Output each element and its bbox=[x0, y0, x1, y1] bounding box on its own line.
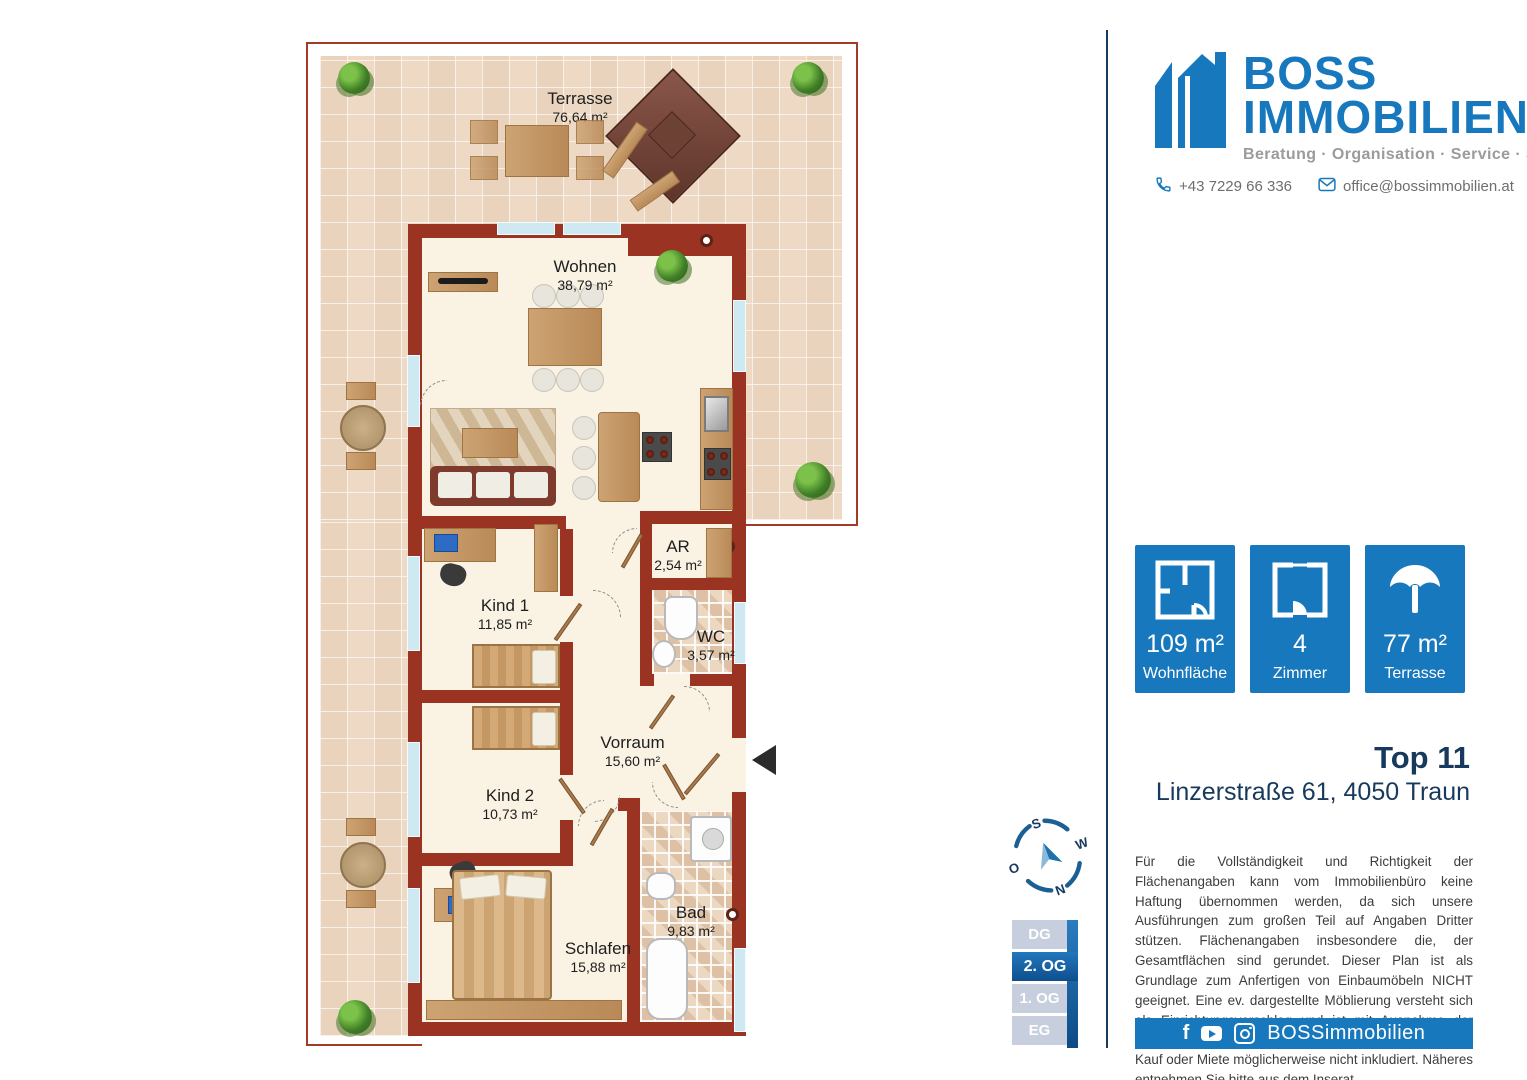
wall bbox=[422, 690, 573, 703]
wall bbox=[640, 511, 746, 524]
instagram-icon[interactable] bbox=[1234, 1023, 1255, 1044]
wall-socket bbox=[726, 908, 739, 921]
floor-item-eg[interactable]: EG bbox=[1012, 1016, 1067, 1045]
wc-sink bbox=[652, 640, 676, 668]
wall bbox=[690, 674, 746, 686]
floorplan-icon bbox=[1154, 559, 1216, 621]
kitchen-sink bbox=[704, 396, 729, 432]
sofa-cushion bbox=[514, 472, 548, 498]
shelf bbox=[706, 528, 732, 578]
compass-s: S bbox=[1030, 815, 1044, 832]
youtube-icon[interactable] bbox=[1201, 1026, 1222, 1041]
dining-chair bbox=[556, 368, 580, 392]
window bbox=[497, 222, 555, 235]
wicker-chair bbox=[346, 890, 376, 908]
email-icon bbox=[1318, 177, 1336, 196]
pillow bbox=[505, 874, 547, 899]
plant-icon bbox=[656, 250, 688, 282]
cooktop bbox=[704, 448, 731, 480]
stat-zimmer: 4 Zimmer bbox=[1250, 545, 1350, 693]
stat-terrasse: 77 m² Terrasse bbox=[1365, 545, 1465, 693]
brand-logo-icon bbox=[1155, 52, 1231, 153]
room-door-icon bbox=[1269, 559, 1331, 621]
parasol-icon bbox=[1384, 559, 1446, 621]
french-door bbox=[407, 888, 420, 983]
wicker-table bbox=[340, 405, 386, 451]
social-footer[interactable]: f BOSSimmobilien bbox=[1135, 1018, 1473, 1049]
stat-wohnflaeche: 109 m² Wohnfläche bbox=[1135, 545, 1235, 693]
bad-sink bbox=[646, 872, 676, 900]
floor-selector-strip bbox=[1067, 920, 1078, 1048]
brand-name-line2: IMMOBILIEN bbox=[1243, 96, 1527, 140]
wicker-chair bbox=[346, 818, 376, 836]
bathtub bbox=[646, 938, 688, 1020]
wall bbox=[627, 798, 640, 1022]
flyer-page: Terrasse 76,64 m² bbox=[0, 0, 1527, 1080]
plant-icon bbox=[338, 1000, 372, 1034]
wall bbox=[560, 529, 573, 596]
terrace-table bbox=[505, 125, 569, 177]
entrance-opening bbox=[732, 738, 746, 792]
bar-stool bbox=[572, 416, 596, 440]
pillow bbox=[459, 874, 501, 900]
social-handle: BOSSimmobilien bbox=[1267, 1022, 1425, 1045]
sofa-cushion bbox=[476, 472, 510, 498]
wicker-chair bbox=[346, 452, 376, 470]
sofa-cushion bbox=[438, 472, 472, 498]
entrance-arrow-icon bbox=[752, 745, 776, 775]
floor-item-1og[interactable]: 1. OG bbox=[1012, 984, 1067, 1013]
shower-drain bbox=[702, 828, 724, 850]
dining-chair bbox=[556, 284, 580, 308]
panel-divider bbox=[1106, 30, 1108, 1048]
wall bbox=[640, 674, 654, 686]
wall bbox=[422, 853, 573, 866]
stat-value: 109 m² bbox=[1135, 630, 1235, 659]
wicker-chair bbox=[346, 382, 376, 400]
pillow bbox=[532, 650, 556, 684]
stat-label: Zimmer bbox=[1250, 665, 1350, 683]
email-link[interactable]: office@bossimmobilien.at bbox=[1318, 177, 1514, 196]
phone-link[interactable]: +43 7229 66 336 bbox=[1155, 176, 1292, 197]
window bbox=[734, 948, 746, 1032]
dining-chair bbox=[580, 284, 604, 308]
contact-row: +43 7229 66 336 office@bossimmobilien.at bbox=[1155, 176, 1514, 197]
french-door bbox=[407, 556, 420, 651]
coffee-table bbox=[462, 428, 518, 458]
floor-item-2og[interactable]: 2. OG bbox=[1012, 952, 1078, 981]
stat-label: Terrasse bbox=[1365, 665, 1465, 683]
wall-socket bbox=[700, 234, 713, 247]
tv bbox=[438, 278, 488, 284]
phone-icon bbox=[1155, 176, 1172, 197]
brand-name-line1: BOSS bbox=[1243, 52, 1527, 96]
brand-logo: BOSS IMMOBILIEN Beratung · Organisation … bbox=[1155, 52, 1485, 163]
dining-chair bbox=[580, 368, 604, 392]
phone-number: +43 7229 66 336 bbox=[1179, 178, 1292, 195]
window bbox=[563, 222, 621, 235]
terrace-chair bbox=[470, 156, 498, 180]
bar-stool bbox=[572, 476, 596, 500]
toilet bbox=[664, 596, 698, 640]
compass-rose: S O W N bbox=[992, 800, 1105, 913]
wall bbox=[560, 642, 573, 775]
wicker-table bbox=[340, 842, 386, 888]
french-door bbox=[407, 742, 420, 837]
low-cabinet bbox=[426, 1000, 622, 1020]
window bbox=[734, 602, 746, 664]
wall bbox=[640, 516, 652, 686]
floor-selector: DG 2. OG 1. OG EG bbox=[1012, 920, 1078, 1048]
terrace-chair bbox=[576, 156, 604, 180]
brand-tagline: Beratung · Organisation · Service · Sich… bbox=[1243, 147, 1527, 162]
plant-icon bbox=[338, 62, 370, 94]
kitchen-island bbox=[598, 412, 640, 502]
email-address: office@bossimmobilien.at bbox=[1343, 178, 1514, 195]
dining-chair bbox=[532, 284, 556, 308]
wall-block bbox=[628, 224, 746, 256]
terrace-chair bbox=[576, 120, 604, 144]
terrace-left-tiles bbox=[320, 520, 420, 1036]
wall bbox=[640, 578, 746, 590]
bar-stool bbox=[572, 446, 596, 470]
floor-plan: Terrasse 76,64 m² bbox=[0, 0, 1106, 1080]
floor-item-dg[interactable]: DG bbox=[1012, 920, 1067, 949]
compass-o: O bbox=[1007, 859, 1022, 877]
french-door bbox=[407, 355, 420, 427]
plant-icon bbox=[795, 462, 831, 498]
stat-value: 77 m² bbox=[1365, 630, 1465, 659]
compass-n: N bbox=[1053, 881, 1067, 898]
listing-title-block: Top 11 Linzerstraße 61, 4050 Traun bbox=[1130, 740, 1470, 807]
compass-w: W bbox=[1073, 834, 1090, 853]
terrace-chair bbox=[470, 120, 498, 144]
dining-table bbox=[528, 308, 602, 366]
wardrobe bbox=[534, 524, 558, 592]
stat-value: 4 bbox=[1250, 630, 1350, 659]
dining-chair bbox=[532, 368, 556, 392]
stat-label: Wohnfläche bbox=[1135, 665, 1235, 683]
plant-icon bbox=[792, 62, 824, 94]
facebook-icon[interactable]: f bbox=[1183, 1022, 1190, 1045]
cooktop bbox=[642, 432, 672, 462]
pillow bbox=[532, 712, 556, 746]
listing-title: Top 11 bbox=[1130, 740, 1470, 776]
laptop bbox=[434, 534, 458, 552]
french-door bbox=[733, 300, 746, 372]
listing-address: Linzerstraße 61, 4050 Traun bbox=[1130, 778, 1470, 807]
